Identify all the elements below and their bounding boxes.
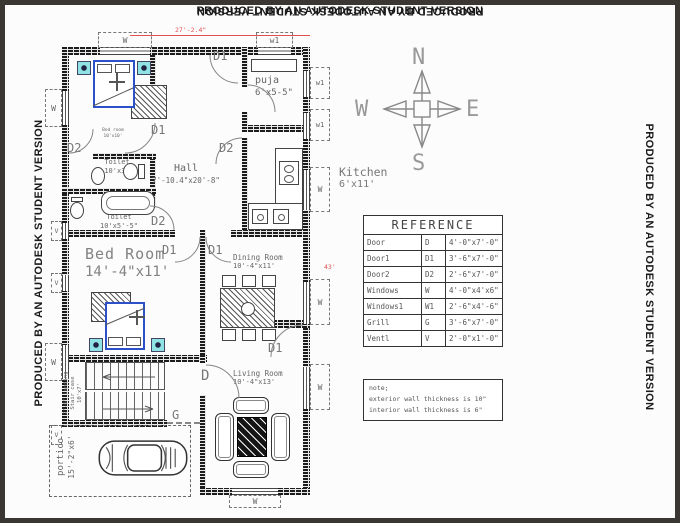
- ref-code: W1: [422, 299, 446, 315]
- note-line: interior wall thickness is 6": [369, 405, 497, 416]
- door-tag-d1: D1: [208, 243, 222, 257]
- room-label-portico: portico 15'-2"x6': [56, 427, 78, 487]
- bathtub: [101, 191, 155, 215]
- room-size: 10'x5'-5": [95, 222, 143, 231]
- floor-plan-sheet: PRODUCED BY AN AUTODESK STUDENT VERSION …: [0, 0, 680, 523]
- room-name: Bed Room: [85, 245, 169, 264]
- sink: [273, 209, 289, 224]
- window-callout: w1: [310, 67, 330, 99]
- dining-chair: [262, 329, 276, 341]
- window-glazing: [303, 113, 310, 139]
- note-line: exterior wall thickness is 10": [369, 394, 497, 405]
- wall: [231, 230, 310, 237]
- ref-code: W: [422, 283, 446, 299]
- ref-size: 2'-6"x4'-6": [446, 299, 503, 315]
- side-table: [137, 61, 151, 75]
- window-callout: W: [45, 89, 62, 127]
- vent-callout: V: [51, 221, 62, 241]
- room-size: 14'-4"x11': [85, 264, 169, 282]
- ref-size: 3'-6"x7'-0": [446, 251, 503, 267]
- vent-label: V: [55, 279, 59, 287]
- door-tag-d2: D2: [219, 141, 233, 155]
- room-name: Hall: [143, 163, 229, 176]
- ref-code: D: [422, 235, 446, 251]
- bathtub-inner: [106, 196, 150, 210]
- table-row: Grill G 3'-6"x7'-0": [364, 315, 503, 331]
- wall: [200, 230, 206, 355]
- window-callout: w1: [256, 32, 293, 48]
- stair-landing-line: [85, 389, 165, 392]
- sink: [252, 209, 268, 224]
- window-callout: W: [310, 279, 330, 325]
- room-label-bedroom-top: Bed room 10'x10': [91, 128, 135, 139]
- window-label: w1: [316, 79, 324, 87]
- door-tag-d1: D1: [268, 341, 282, 355]
- window-callout: W: [45, 343, 62, 381]
- sofa: [215, 413, 234, 461]
- table-row: Ventl V 2'-0"x1'-0": [364, 331, 503, 347]
- dimension-right-height: 43': [324, 263, 336, 271]
- pillow: [126, 337, 141, 346]
- ref-item: Windows1: [364, 299, 422, 315]
- ref-item: Door1: [364, 251, 422, 267]
- room-label-bedroom-mid: Bed Room 14'-4"x11': [85, 245, 169, 281]
- door-tag-d: D: [201, 368, 209, 384]
- table-row: Windows1 W1 2'-6"x4'-6": [364, 299, 503, 315]
- stair-landing: 2'-6" Landing: [63, 365, 70, 421]
- banner-bottom: PRODUCED BY AN AUTODESK STUDENT VERSION: [5, 5, 675, 17]
- room-label-kitchen: Kitchen 6'x11': [339, 165, 387, 192]
- ref-item: Grill: [364, 315, 422, 331]
- window-callout: w1: [310, 109, 330, 141]
- pillow: [115, 64, 130, 73]
- sofa: [271, 413, 290, 461]
- sink-drain: [278, 214, 285, 221]
- sofa-seat: [233, 397, 269, 414]
- wall: [242, 125, 310, 132]
- room-name: Dining Room: [233, 253, 283, 262]
- door-tag-d2: D2: [67, 141, 81, 155]
- compass-rose: [371, 67, 473, 155]
- window-glazing: [303, 367, 310, 409]
- wall: [242, 112, 248, 126]
- window-label: W: [318, 298, 323, 307]
- room-name: Stair case: [70, 365, 77, 421]
- ref-size: 3'-6"x7'-0": [446, 315, 503, 331]
- room-size: 10'-4"x13': [233, 378, 283, 387]
- dining-chair: [262, 275, 276, 287]
- window-label: W: [318, 383, 323, 392]
- pillow: [108, 337, 123, 346]
- table-row: Door1 D1 3'-6"x7'-0": [364, 251, 503, 267]
- dimension-top-width: 27'-2.4": [175, 26, 206, 34]
- window-callout: W: [229, 495, 281, 508]
- window-glazing: [258, 47, 291, 55]
- dining-chair: [222, 329, 236, 341]
- ref-code: G: [422, 315, 446, 331]
- vent-glazing: [62, 275, 69, 291]
- banner-left: PRODUCED BY AN AUTODESK STUDENT VERSION: [33, 120, 45, 407]
- room-size: 10'x7': [77, 365, 84, 421]
- burner: [284, 175, 294, 183]
- note-box: note; exterior wall thickness is 10" int…: [363, 379, 503, 421]
- pillow: [97, 64, 112, 73]
- room-size: 10'x10': [91, 134, 135, 140]
- room-label-living: Living Room 10'-4"x13': [233, 369, 283, 387]
- window-glazing: [100, 47, 150, 55]
- room-name: portico: [56, 427, 67, 487]
- window-callout: W: [310, 364, 330, 410]
- stove: [279, 161, 299, 185]
- ref-item: Ventl: [364, 331, 422, 347]
- ref-size: 4'-0"x7'-0": [446, 235, 503, 251]
- table-row: Door2 D2 2'-6"x7'-0": [364, 267, 503, 283]
- window-label: W: [253, 497, 258, 506]
- grill-tag: G: [172, 408, 179, 422]
- window-glazing: [303, 71, 310, 97]
- door-tag-d1: D1: [151, 123, 165, 137]
- room-label-puja: puja 6'x5-5": [255, 75, 293, 99]
- room-label-dining: Dining Room 10'-4"x11': [233, 253, 283, 271]
- room-size: 7'-10.4"x20'-8": [143, 176, 229, 185]
- ref-code: D1: [422, 251, 446, 267]
- window-label: W: [51, 104, 56, 113]
- door-tag-d1: D1: [213, 49, 227, 63]
- window-label: w1: [270, 36, 280, 45]
- window-glazing: [303, 282, 310, 324]
- side-table: [77, 61, 91, 75]
- wall: [62, 230, 175, 237]
- reference-table-title: REFERENCE: [364, 216, 503, 235]
- ref-size: 4'-0"x4'x6": [446, 283, 503, 299]
- dining-chair: [242, 275, 256, 287]
- ref-code: V: [422, 331, 446, 347]
- ref-code: D2: [422, 267, 446, 283]
- table-row: Windows W 4'-0"x4'x6": [364, 283, 503, 299]
- puja-shelf: [251, 59, 297, 72]
- ref-size: 2'-0"x1'-0": [446, 331, 503, 347]
- window-label: W: [51, 358, 56, 367]
- room-label-hall: Hall 7'-10.4"x20'-8": [143, 163, 229, 185]
- window-label: w1: [316, 121, 324, 129]
- dining-chair: [242, 329, 256, 341]
- sofa-seat: [233, 461, 269, 478]
- window-label: W: [318, 185, 323, 194]
- room-size: 6'x5-5": [255, 88, 293, 99]
- wardrobe: [131, 85, 167, 119]
- window-glazing: [303, 170, 310, 210]
- wall: [242, 47, 248, 87]
- ref-size: 2'-6"x7'-0": [446, 267, 503, 283]
- window-callout: W: [98, 32, 152, 48]
- table-row: Door D 4'-0"x7'-0": [364, 235, 503, 251]
- vent-label: V: [55, 227, 59, 235]
- compass-west-label: W: [355, 97, 368, 122]
- ref-item: Windows: [364, 283, 422, 299]
- toilet-wc: [123, 163, 138, 180]
- wall: [200, 395, 206, 488]
- room-size: 15'-2"x6': [67, 427, 77, 487]
- burner: [284, 165, 294, 173]
- coffee-table: [237, 417, 267, 457]
- window-callout: W: [310, 167, 330, 212]
- room-size: 10'-4"x11': [233, 262, 283, 271]
- room-size: 6'x11': [339, 179, 387, 192]
- window-glazing: [232, 488, 278, 495]
- toilet-tank: [138, 164, 145, 179]
- dining-table: [220, 288, 275, 328]
- room-label-toilet2: Toilet 10'x5'-5": [95, 213, 143, 231]
- wall: [200, 355, 206, 363]
- ref-item: Door2: [364, 267, 422, 283]
- room-name: puja: [255, 75, 293, 88]
- window-glazing: [62, 91, 69, 125]
- toilet-wc: [70, 202, 84, 219]
- dining-chair: [222, 275, 236, 287]
- grill-line: [167, 422, 200, 425]
- note-line: note;: [369, 383, 497, 394]
- dining-table-center: [241, 302, 255, 316]
- room-name: Living Room: [233, 369, 283, 378]
- window-label: W: [123, 36, 128, 45]
- ref-item: Door: [364, 235, 422, 251]
- wall: [62, 355, 207, 362]
- door-tag-d2: D2: [151, 214, 165, 228]
- sink-drain: [257, 214, 264, 221]
- side-table: [151, 338, 165, 352]
- reference-table: REFERENCE Door D 4'-0"x7'-0" Door1 D1 3'…: [363, 215, 503, 347]
- car-top-view: [97, 435, 189, 481]
- washbasin: [91, 167, 105, 185]
- vent-callout: V: [51, 273, 62, 293]
- side-table: [89, 338, 103, 352]
- vent-glazing: [62, 223, 69, 239]
- room-name: Kitchen: [339, 165, 387, 179]
- banner-right: PRODUCED BY AN AUTODESK STUDENT VERSION: [643, 124, 655, 411]
